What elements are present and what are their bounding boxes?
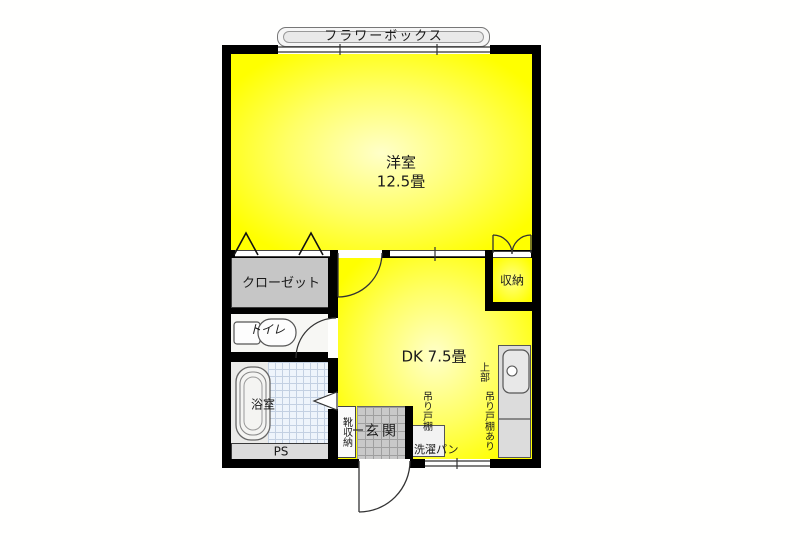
western-room-size: 12.5畳 (377, 172, 425, 191)
dk-label: DK 7.5畳 (401, 348, 466, 367)
pipe-space-label: PS (274, 445, 289, 460)
storage-label: 収納 (500, 274, 524, 289)
toilet-door-arc (296, 318, 336, 358)
window-bottom-panes (425, 458, 490, 469)
bathroom-label: 浴室 (251, 398, 275, 413)
washing-pan-label: 洗濯パン (414, 441, 459, 457)
toilet-label: トイレ (249, 323, 285, 338)
closet-label: クローゼット (242, 276, 320, 292)
window-top-ticks (340, 44, 437, 55)
bifold-door-icon (234, 233, 258, 255)
upper-cupboard-note-2: 吊り戸棚あり (481, 391, 496, 451)
upper-cupboard-note-1: 上部 (476, 362, 491, 382)
western-room-label: 洋室 12.5畳 (377, 153, 425, 191)
bath-folding-door-icon (314, 392, 337, 410)
western-room-name: 洋室 (377, 153, 425, 172)
storage-door-arcs (493, 235, 531, 254)
sink-drain-icon (507, 366, 517, 376)
lineart-overlay (0, 0, 800, 540)
entrance-label: 玄関 (365, 423, 399, 441)
floor-plan: フラワーボックス 洋室 12.5畳 クローゼット トイレ 収納 DK 7.5畳 … (0, 0, 800, 540)
entrance-door-arc (359, 461, 410, 512)
window-top-panes (278, 47, 490, 52)
shoe-storage-label: 靴収納 (339, 417, 354, 447)
hanging-cupboard-label: 吊り戸棚 (419, 391, 434, 431)
dk-door-arc (338, 253, 382, 297)
flower-box-label: フラワーボックス (324, 29, 444, 45)
bifold-door-icon (299, 233, 323, 255)
